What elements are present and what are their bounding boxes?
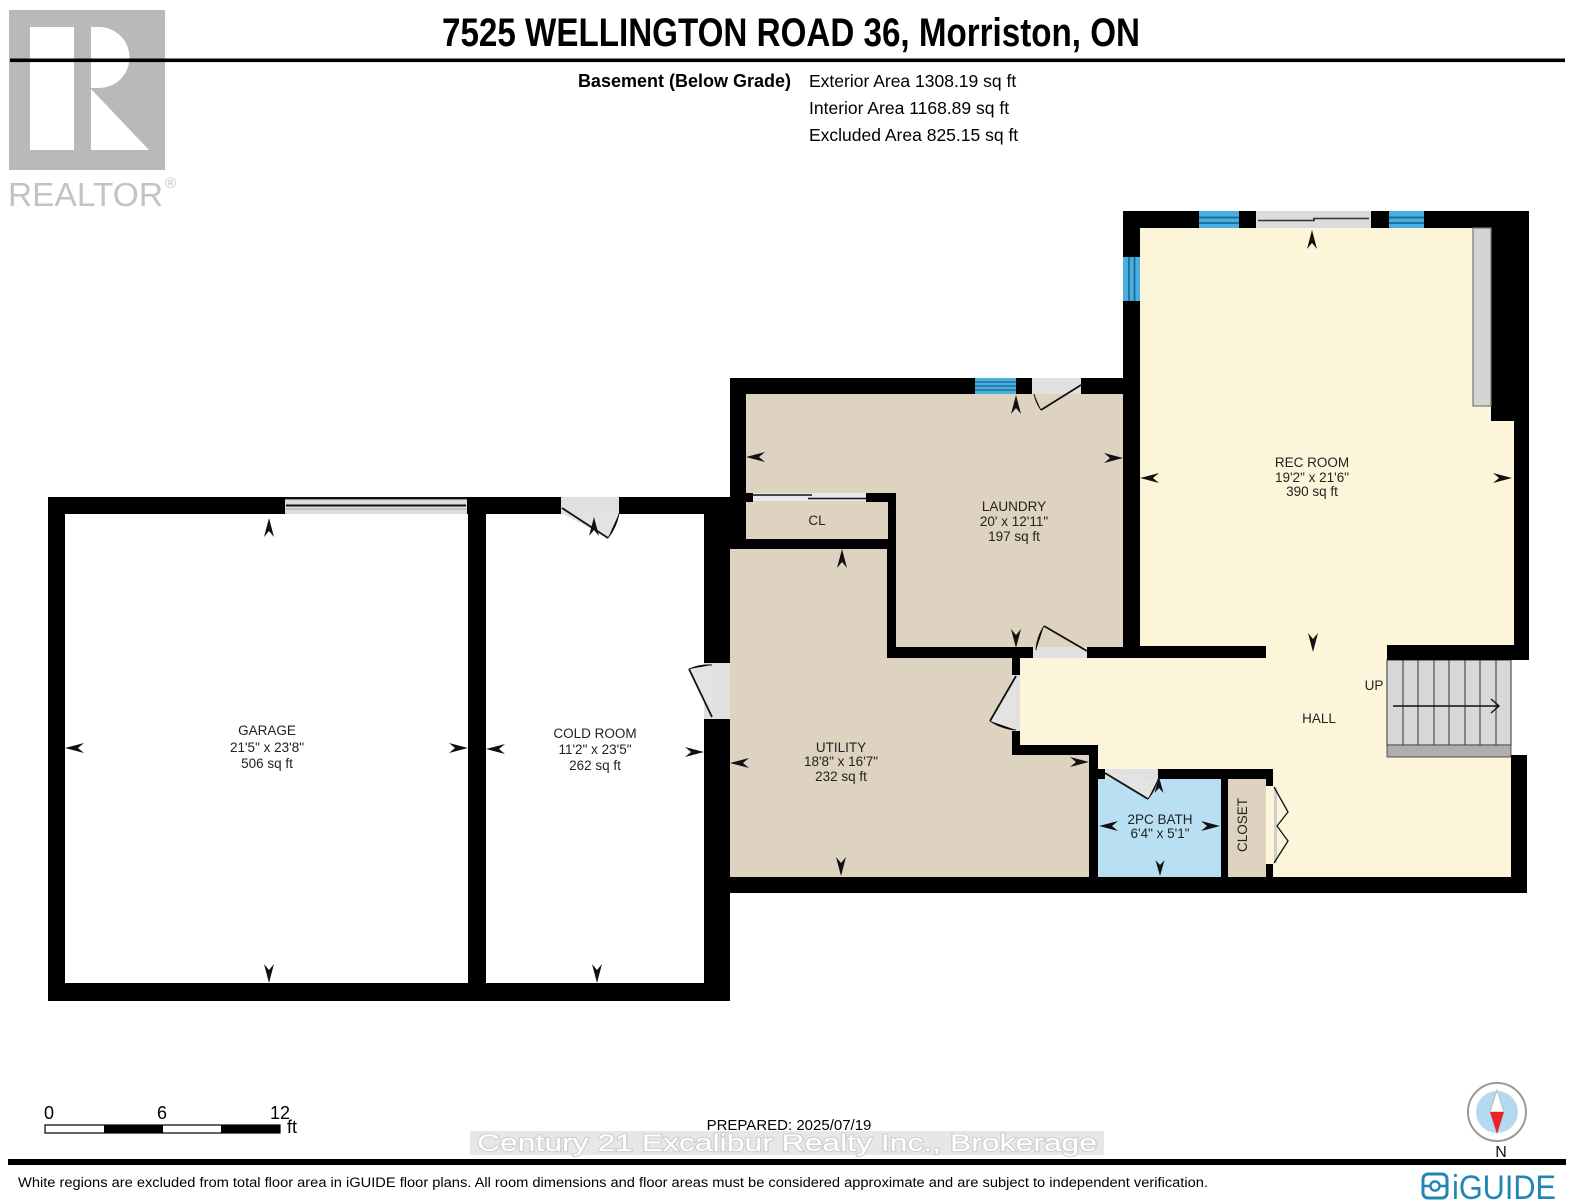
- svg-text:CL: CL: [808, 513, 826, 528]
- svg-text:Exterior Area 1308.19 sq ft: Exterior Area 1308.19 sq ft: [809, 71, 1016, 91]
- svg-text:0: 0: [44, 1103, 54, 1123]
- svg-text:262 sq ft: 262 sq ft: [569, 758, 621, 773]
- svg-text:11'2" x 23'5": 11'2" x 23'5": [558, 742, 631, 757]
- svg-text:Basement (Below Grade): Basement (Below Grade): [578, 71, 791, 91]
- svg-text:GARAGE: GARAGE: [238, 723, 296, 738]
- svg-text:20' x 12'11": 20' x 12'11": [980, 514, 1048, 529]
- svg-text:506 sq ft: 506 sq ft: [241, 756, 293, 771]
- svg-text:6: 6: [157, 1103, 167, 1123]
- svg-text:Interior Area 1168.89 sq ft: Interior Area 1168.89 sq ft: [809, 98, 1009, 118]
- svg-text:LAUNDRY: LAUNDRY: [982, 499, 1046, 514]
- svg-text:6'4" x 5'1": 6'4" x 5'1": [1130, 826, 1189, 841]
- svg-text:iGUIDE: iGUIDE: [1452, 1169, 1556, 1200]
- svg-text:COLD ROOM: COLD ROOM: [553, 726, 636, 741]
- svg-text:197 sq ft: 197 sq ft: [988, 529, 1040, 544]
- svg-text:CLOSET: CLOSET: [1235, 798, 1250, 852]
- svg-text:UP: UP: [1365, 678, 1384, 693]
- svg-text:2PC BATH: 2PC BATH: [1127, 812, 1192, 827]
- svg-text:HALL: HALL: [1302, 711, 1336, 726]
- svg-text:Excluded Area 825.15 sq ft: Excluded Area 825.15 sq ft: [809, 125, 1018, 145]
- svg-text:7525 WELLINGTON ROAD 36, Morri: 7525 WELLINGTON ROAD 36, Morriston, ON: [442, 11, 1140, 55]
- svg-text:REC ROOM: REC ROOM: [1275, 455, 1349, 470]
- svg-text:REALTOR: REALTOR: [8, 176, 163, 213]
- svg-text:232 sq ft: 232 sq ft: [815, 769, 867, 784]
- svg-text:N: N: [1495, 1144, 1507, 1161]
- svg-text:ft: ft: [287, 1117, 297, 1137]
- svg-text:Century 21 Excalibur Realty In: Century 21 Excalibur Realty Inc., Broker…: [477, 1130, 1097, 1157]
- svg-text:18'8" x 16'7": 18'8" x 16'7": [804, 754, 878, 769]
- svg-text:White regions are excluded fro: White regions are excluded from total fl…: [18, 1175, 1208, 1190]
- svg-text:UTILITY: UTILITY: [816, 740, 866, 755]
- svg-text:19'2" x 21'6": 19'2" x 21'6": [1275, 470, 1349, 485]
- svg-text:21'5" x 23'8": 21'5" x 23'8": [230, 740, 304, 755]
- svg-text:390 sq ft: 390 sq ft: [1286, 484, 1338, 499]
- svg-text:®: ®: [165, 175, 176, 192]
